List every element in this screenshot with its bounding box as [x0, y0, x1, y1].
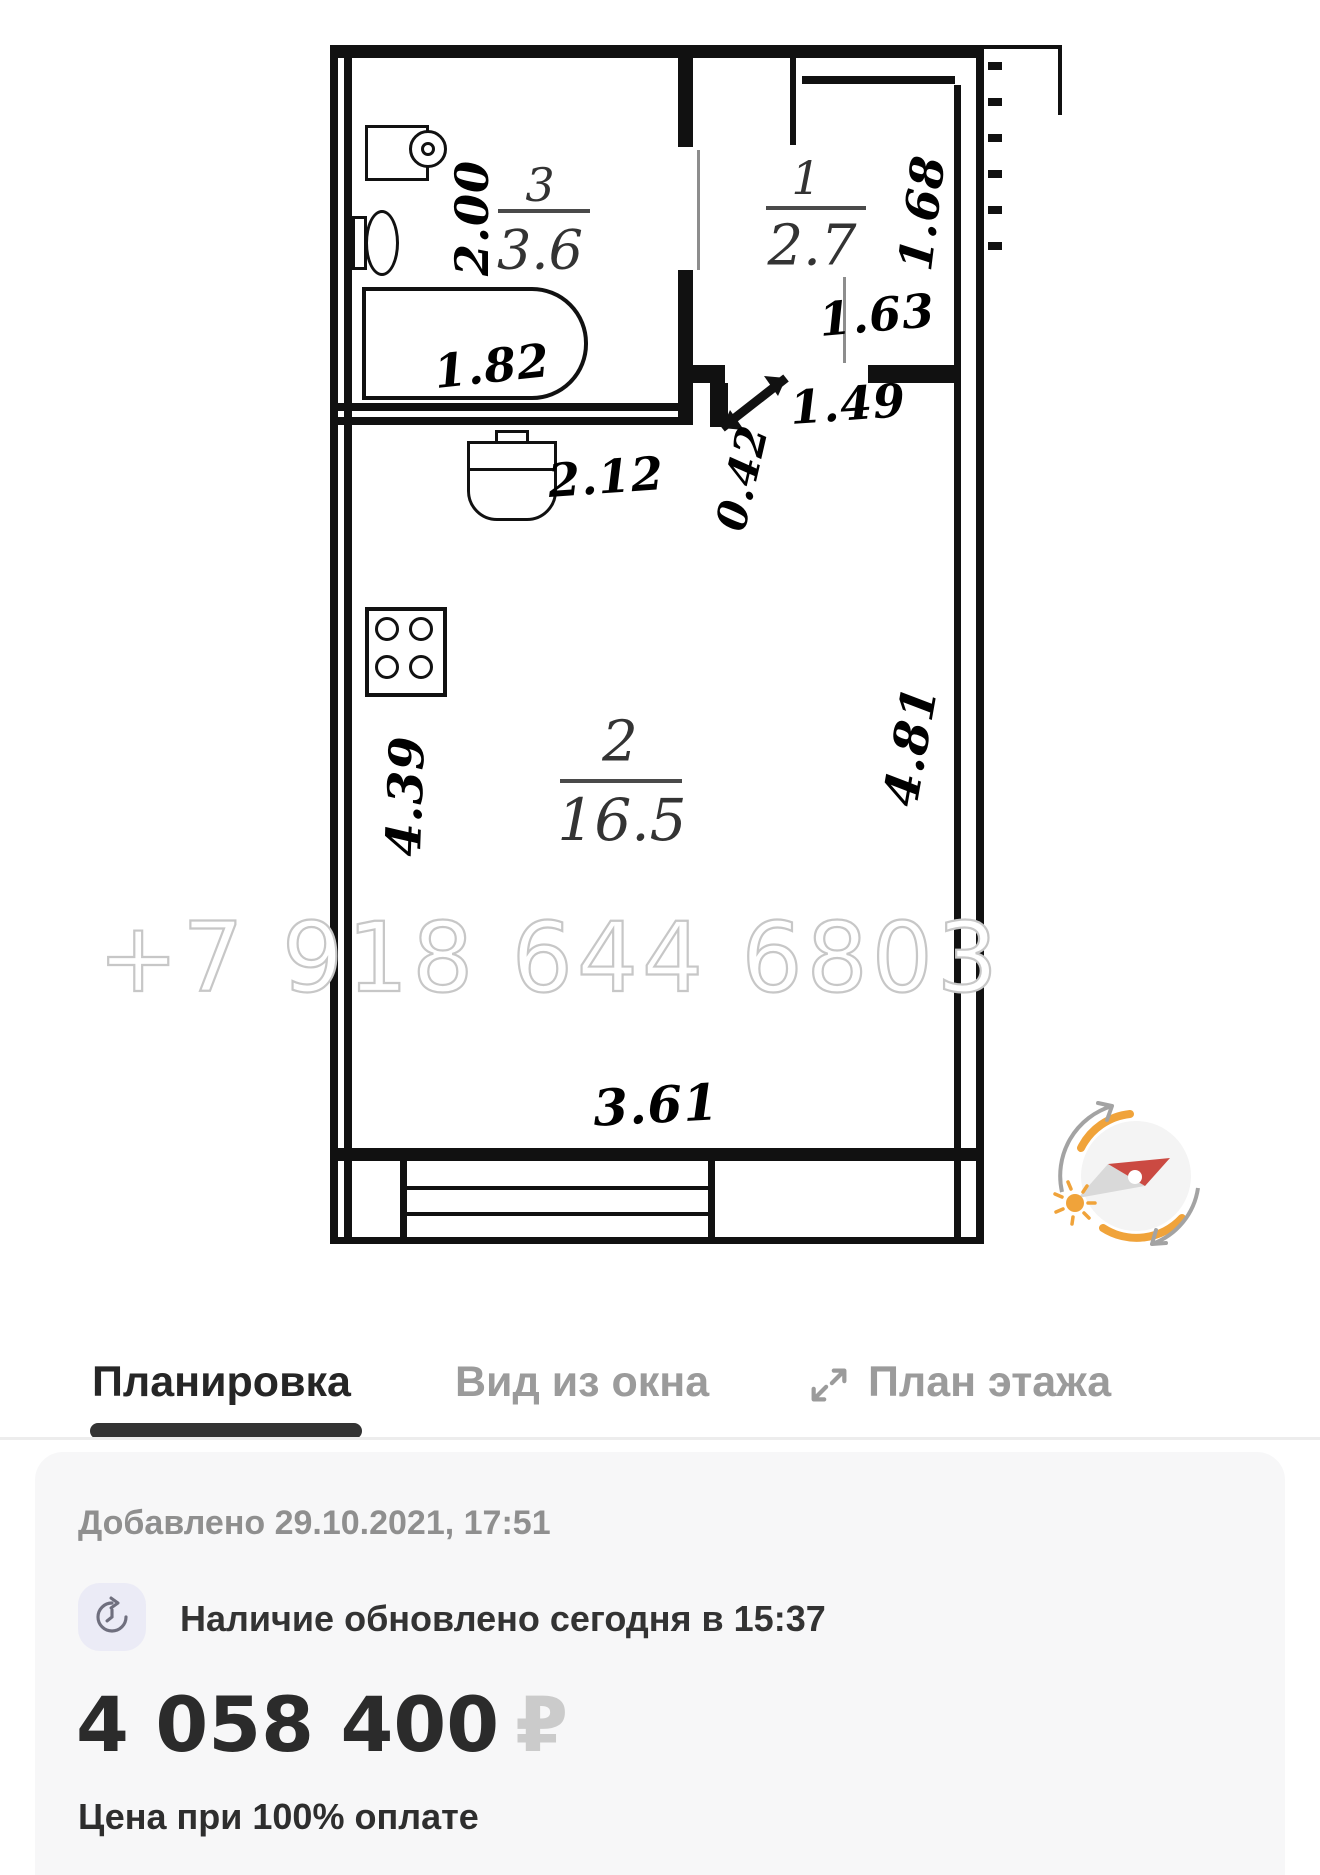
price-note: Цена при 100% оплате [78, 1796, 479, 1838]
room-number-living: 2 [602, 710, 638, 775]
stove-burner [409, 655, 433, 679]
hall-partition [790, 45, 796, 145]
wall-left-inner [344, 45, 352, 1244]
price-value: 4 058 400 [76, 1680, 499, 1769]
room-area-living: 16.5 [557, 786, 686, 854]
wall-left-outer [330, 45, 338, 1244]
room-area-hall: 2.7 [767, 214, 856, 279]
entrance-hatch [988, 242, 1002, 250]
window-frame-right [708, 1161, 715, 1237]
tab-bar: Планировка Вид из окна План этажа [0, 1340, 1320, 1450]
dim-kitchen-wall: 2.12 [546, 446, 666, 508]
bathroom-wall-bottom-b [330, 417, 693, 425]
hall-wall-inner-top [802, 76, 955, 84]
room-divider-bathroom [498, 209, 590, 213]
currency-symbol: ₽ [515, 1680, 568, 1769]
window-glass-line [400, 1186, 715, 1190]
bathroom-wall-bottom-a [330, 403, 693, 411]
dim-room-bottom: 3.61 [592, 1072, 721, 1138]
room-number-bathroom: 3 [525, 158, 554, 212]
wall-right-inner [954, 85, 961, 1244]
dim-hall-width: 1.63 [817, 283, 937, 347]
wall-bottom-outer [330, 1237, 984, 1244]
bathroom-wall-right-upper [678, 45, 693, 147]
window-frame-left [400, 1161, 407, 1237]
floor-plan[interactable]: +7 918 644 6803 [0, 0, 1320, 1330]
stove-burner [409, 617, 433, 641]
expand-icon[interactable] [806, 1362, 852, 1408]
room-area-bathroom: 3.6 [497, 219, 583, 282]
tab-floor-plan[interactable]: План этажа [868, 1358, 1111, 1407]
dim-entry-opening: 1.49 [788, 373, 908, 435]
bathroom-wall-right-lower [678, 270, 693, 420]
entrance-hatch [988, 134, 1002, 142]
tab-divider [0, 1437, 1320, 1440]
bathroom-door-leaf [697, 150, 700, 270]
entrance-hatch [988, 98, 1002, 106]
entrance-hatch [988, 206, 1002, 214]
room-number-hall: 1 [791, 151, 820, 205]
wall-top [330, 45, 984, 58]
entrance-hatch [988, 170, 1002, 178]
tab-window-view[interactable]: Вид из окна [455, 1358, 709, 1407]
sink-drain [421, 142, 435, 156]
tab-layout[interactable]: Планировка [92, 1358, 351, 1407]
availability-text: Наличие обновлено сегодня в 15:37 [180, 1598, 826, 1640]
stove-burner [375, 655, 399, 679]
window-glass-line [400, 1212, 715, 1216]
dim-hall-depth: 1.68 [888, 152, 956, 274]
added-date: Добавлено 29.10.2021, 17:51 [78, 1504, 551, 1543]
room-divider-hall [766, 206, 866, 210]
kitchen-sink-line [470, 468, 554, 471]
dim-bath-width: 2.00 [445, 160, 499, 276]
refresh-clock-icon [91, 1596, 133, 1638]
wall-neighbor [1058, 45, 1062, 115]
toilet-bowl [365, 210, 399, 276]
stove-burner [375, 617, 399, 641]
watermark-phone: +7 918 644 6803 [98, 902, 1002, 1014]
dim-room-right: 4.81 [873, 682, 949, 811]
price: 4 058 400₽ [76, 1680, 568, 1769]
entrance-hatch [988, 62, 1002, 70]
dim-room-left: 4.39 [376, 735, 436, 858]
wall-top-extension [984, 45, 1062, 49]
wall-right-outer [976, 45, 984, 1244]
kitchen-sink [467, 441, 557, 521]
availability-icon-bg [78, 1583, 146, 1651]
listing-info-card: Добавлено 29.10.2021, 17:51 Наличие обно… [35, 1452, 1285, 1875]
wall-bottom [330, 1148, 984, 1161]
room-divider-living [560, 779, 682, 783]
compass-icon[interactable] [1048, 1096, 1203, 1251]
